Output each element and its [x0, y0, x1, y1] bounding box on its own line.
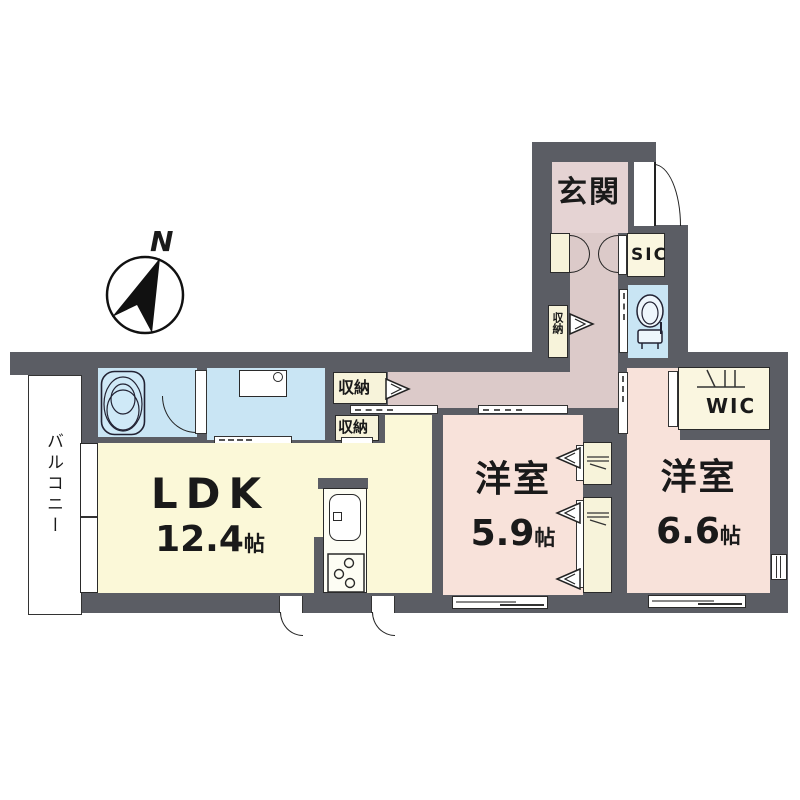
- corridor: [388, 372, 628, 408]
- wic-label: WIC: [706, 396, 756, 416]
- floor-plan: バルコニー 玄関 SIC 収納: [0, 0, 800, 800]
- room-ldk-kitchen-strip: [385, 415, 432, 443]
- door-arc-icon: [372, 612, 395, 636]
- closet-pipe-icon: [585, 452, 611, 472]
- west2-window-rail: [652, 600, 714, 602]
- balcony-window: [80, 443, 98, 593]
- toilet-door: [619, 289, 628, 353]
- kitchen-storage-label: 収納: [338, 420, 368, 435]
- west1-window-rail: [500, 604, 544, 606]
- kitchen-faucet-icon: [333, 512, 342, 521]
- west1-window-rail: [456, 601, 516, 603]
- wic-door-jamb: [668, 371, 678, 427]
- toilet-icon: [634, 290, 666, 354]
- west2-size: 6.6帖: [627, 514, 770, 550]
- corridor-storage-label: 収納: [338, 380, 370, 396]
- hall-storage-label: 収納: [552, 312, 563, 334]
- genkan-label: 玄関: [557, 178, 621, 208]
- ldk-size-unit: 帖: [244, 532, 265, 556]
- door-arc-icon: [280, 612, 303, 636]
- compass-north-label: N: [150, 228, 173, 256]
- bifold-arrow-left-icon: [555, 568, 581, 590]
- bathtub-icon: [100, 370, 146, 436]
- hall-coat-closet: [550, 233, 570, 273]
- bath-door-jamb: [195, 370, 207, 434]
- west2-side-window-rail: [776, 556, 777, 578]
- closet-pipe-icon: [585, 508, 611, 528]
- entrance-door-arc-icon: [654, 164, 681, 226]
- bifold-arrow-right-icon: [569, 313, 595, 335]
- west2-side-window-rail: [780, 556, 781, 578]
- entrance-door-opening: [634, 162, 656, 226]
- west2-window-rail: [698, 603, 742, 605]
- hanger-pipe-icon: [695, 368, 747, 390]
- room-ldk: [98, 443, 432, 593]
- sic-door-jamb: [618, 235, 627, 275]
- washing-machine-faucet-icon: [273, 372, 283, 382]
- balcony-label: バルコニー: [44, 432, 61, 537]
- sic-label: SIC: [631, 247, 668, 264]
- west2-door: [618, 372, 628, 434]
- wall-left-stub: [10, 352, 90, 375]
- ldk-bottom-door-opening: [371, 596, 395, 613]
- balcony-window-divider: [81, 516, 97, 518]
- stove-icon: [327, 553, 365, 593]
- west2-name: 洋室: [627, 460, 770, 496]
- ldk-bottom-door-opening: [279, 596, 303, 613]
- ldk-name: LDK: [151, 469, 269, 518]
- ldk-size-value: 12.4: [155, 519, 244, 560]
- bifold-arrow-left-icon: [555, 502, 581, 524]
- bifold-arrow-right-icon: [385, 378, 411, 400]
- ldk-size: 12.4帖: [120, 522, 300, 558]
- bifold-arrow-left-icon: [555, 447, 581, 469]
- west2-side-window: [771, 554, 787, 580]
- ldk-label: LDK: [120, 473, 300, 515]
- west1-sliding-door: [478, 405, 568, 414]
- compass-icon: [100, 225, 192, 340]
- ldk-sliding-door: [350, 405, 438, 414]
